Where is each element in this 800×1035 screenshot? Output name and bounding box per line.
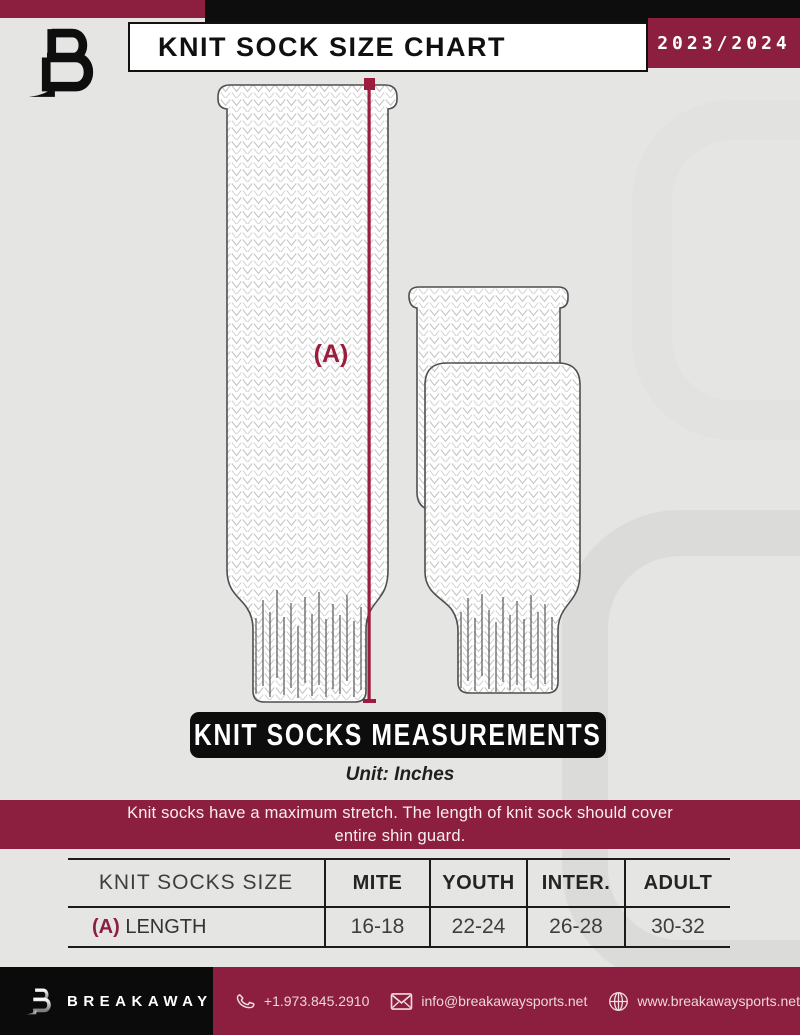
stretch-note-line1: Knit socks have a maximum stretch. The l… — [127, 802, 673, 825]
unit-note: Unit: Inches — [0, 764, 800, 786]
email-contact[interactable]: info@breakawaysports.net — [390, 992, 587, 1011]
size-chart-page: (A) KNIT SOCK SIZE CHART 2023/2024 KNIT … — [0, 0, 800, 1035]
email-address: info@breakawaysports.net — [421, 993, 587, 1009]
phone-contact[interactable]: +1.973.845.2910 — [235, 991, 370, 1012]
email-icon — [390, 992, 413, 1011]
stretch-note-line2: entire shin guard. — [334, 825, 465, 848]
col-header-mite: MITE — [325, 859, 430, 907]
footer-breakaway-b-logo — [24, 986, 54, 1017]
col-header-youth: YOUTH — [430, 859, 527, 907]
length-mite: 16-18 — [325, 907, 430, 947]
phone-number: +1.973.845.2910 — [264, 993, 370, 1009]
globe-icon — [608, 991, 629, 1012]
measurement-name: LENGTH — [125, 916, 206, 938]
breakaway-b-logo — [22, 22, 102, 104]
website-url: www.breakawaysports.net — [637, 993, 800, 1009]
sock-intermediate-illustration — [425, 363, 580, 693]
stretch-note-banner: Knit socks have a maximum stretch. The l… — [0, 800, 800, 849]
footer-contact-panel: +1.973.845.2910 info@breakawaysports.net — [213, 967, 800, 1035]
size-table: KNIT SOCKS SIZE MITE YOUTH INTER. ADULT … — [68, 858, 730, 948]
measurements-banner-label: KNIT SOCKS MEASUREMENTS — [194, 717, 601, 753]
size-table-header-row: KNIT SOCKS SIZE MITE YOUTH INTER. ADULT — [68, 859, 730, 907]
footer-brand-panel: BREAKAWAY — [0, 967, 213, 1035]
page-title-bar: KNIT SOCK SIZE CHART — [128, 22, 648, 72]
top-accent-maroon — [0, 0, 205, 18]
measurements-banner: KNIT SOCKS MEASUREMENTS — [190, 712, 606, 758]
phone-icon — [235, 991, 256, 1012]
length-adult: 30-32 — [625, 907, 730, 947]
footer: BREAKAWAY +1.973.845.2910 info@breakaway… — [0, 967, 800, 1035]
length-inter: 26-28 — [527, 907, 625, 947]
col-header-inter: INTER. — [527, 859, 625, 907]
unit-note-text: Unit: Inches — [346, 764, 455, 785]
measurement-label: (A) — [314, 340, 349, 368]
season-badge: 2023/2024 — [648, 18, 800, 68]
col-header-size: KNIT SOCKS SIZE — [68, 859, 325, 907]
website-contact[interactable]: www.breakawaysports.net — [608, 991, 800, 1012]
season-label: 2023/2024 — [657, 33, 791, 54]
col-header-adult: ADULT — [625, 859, 730, 907]
footer-brand-name: BREAKAWAY — [67, 993, 213, 1010]
measurement-key: (A) — [92, 916, 120, 938]
page-title: KNIT SOCK SIZE CHART — [158, 32, 506, 63]
length-row-label: (A) LENGTH — [68, 907, 325, 947]
length-youth: 22-24 — [430, 907, 527, 947]
length-row: (A) LENGTH 16-18 22-24 26-28 30-32 — [68, 907, 730, 947]
